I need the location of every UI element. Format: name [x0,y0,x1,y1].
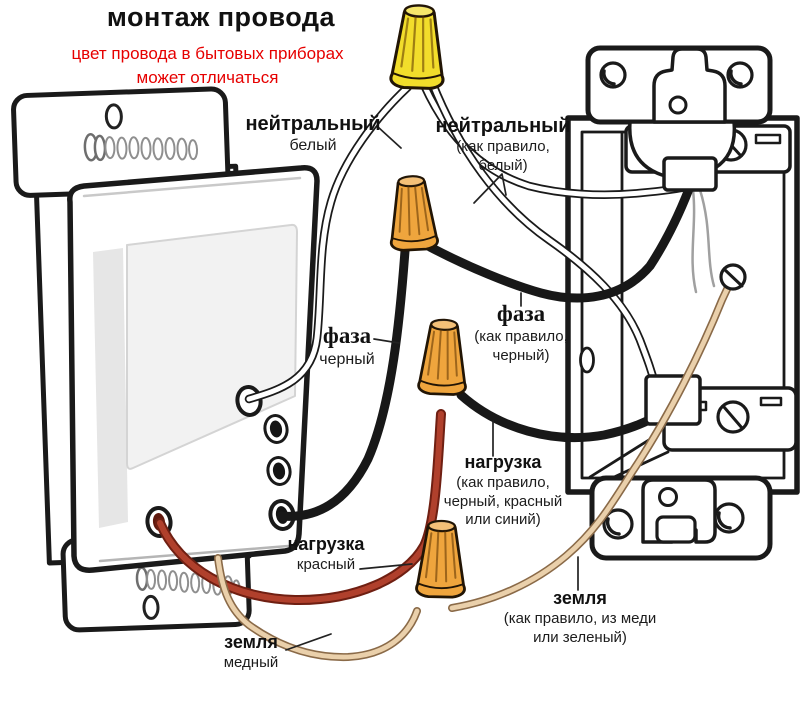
label-load-right-sub2: черный, красный [440,493,566,512]
label-phase-right-title: фаза [468,300,574,328]
label-load-right: нагрузка (как правило, черный, красный и… [440,452,566,530]
label-phase-left-title: фаза [306,322,388,350]
label-neutral-left-title: нейтральный [240,112,386,136]
diagram-title: монтаж провода [56,2,386,33]
label-phase-left: фаза черный [306,322,388,370]
wire-nut-orange-2-icon [418,319,467,395]
label-ground-left-title: земля [204,632,298,654]
label-neutral-left-sub: белый [240,136,386,156]
label-load-right-sub1: (как правило, [440,474,566,493]
wiring-diagram-page: монтаж провода цвет провода в бытовых пр… [0,0,800,701]
label-phase-left-sub: черный [306,350,388,370]
label-neutral-right-title: нейтральный [430,114,576,138]
wire-nut-yellow-icon [391,5,446,89]
label-neutral-right: нейтральный (как правило, белый) [430,114,576,176]
label-ground-right-sub2: или зеленый) [494,629,666,648]
label-load-left-title: нагрузка [276,534,376,556]
wiring-diagram-illustration [0,0,800,701]
label-load-right-title: нагрузка [440,452,566,474]
label-ground-left: земля медный [204,632,298,673]
dimmer-device-body [70,168,317,570]
strap-hole-top [106,105,122,129]
wall-box [568,48,797,558]
label-phase-right: фаза (как правило, черный) [468,300,574,366]
label-load-left: нагрузка красный [276,534,376,575]
box-side-hole [581,348,594,372]
subtitle-line-1: цвет провода в бытовых приборах [40,42,375,66]
label-phase-right-sub2: черный) [468,347,574,366]
wire-nut-orange-1-icon [388,175,438,251]
cable-entry-block-top [664,158,716,190]
label-load-right-sub3: или синий) [440,511,566,530]
label-ground-right-title: земля [494,588,666,610]
label-ground-right: земля (как правило, из меди или зеленый) [494,588,666,647]
label-neutral-left: нейтральный белый [240,112,386,156]
label-ground-right-sub1: (как правило, из меди [494,610,666,629]
label-neutral-right-sub2: белый) [430,157,576,176]
subtitle-line-2: может отличаться [40,66,375,90]
diagram-subtitle: цвет провода в бытовых приборах может от… [40,42,375,90]
label-load-left-sub: красный [276,556,376,575]
label-neutral-right-sub1: (как правило, [430,138,576,157]
ground-screw-icon [721,265,745,289]
label-phase-right-sub1: (как правило, [468,328,574,347]
strap-hole-bottom [144,596,159,618]
label-ground-left-sub: медный [204,654,298,673]
